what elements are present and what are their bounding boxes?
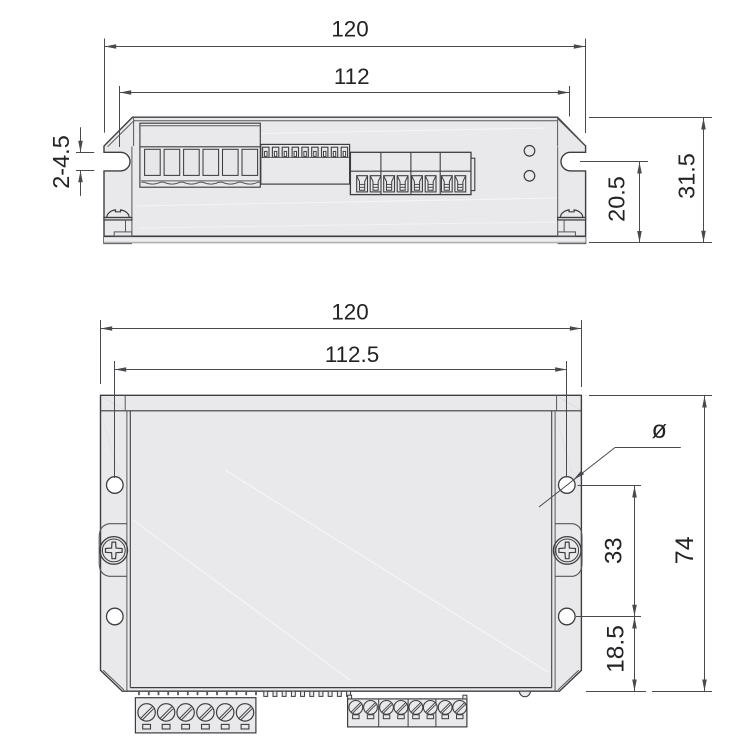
svg-text:20.5: 20.5: [604, 176, 630, 222]
svg-text:120: 120: [331, 300, 368, 325]
svg-text:112: 112: [334, 64, 370, 89]
svg-text:31.5: 31.5: [674, 153, 700, 199]
svg-text:2-4.5: 2-4.5: [48, 135, 74, 189]
svg-text:ø: ø: [652, 416, 667, 444]
svg-text:74: 74: [671, 536, 699, 564]
svg-text:33: 33: [601, 537, 628, 564]
svg-text:112.5: 112.5: [325, 342, 379, 367]
svg-text:120: 120: [331, 17, 368, 42]
svg-text:18.5: 18.5: [602, 625, 629, 673]
